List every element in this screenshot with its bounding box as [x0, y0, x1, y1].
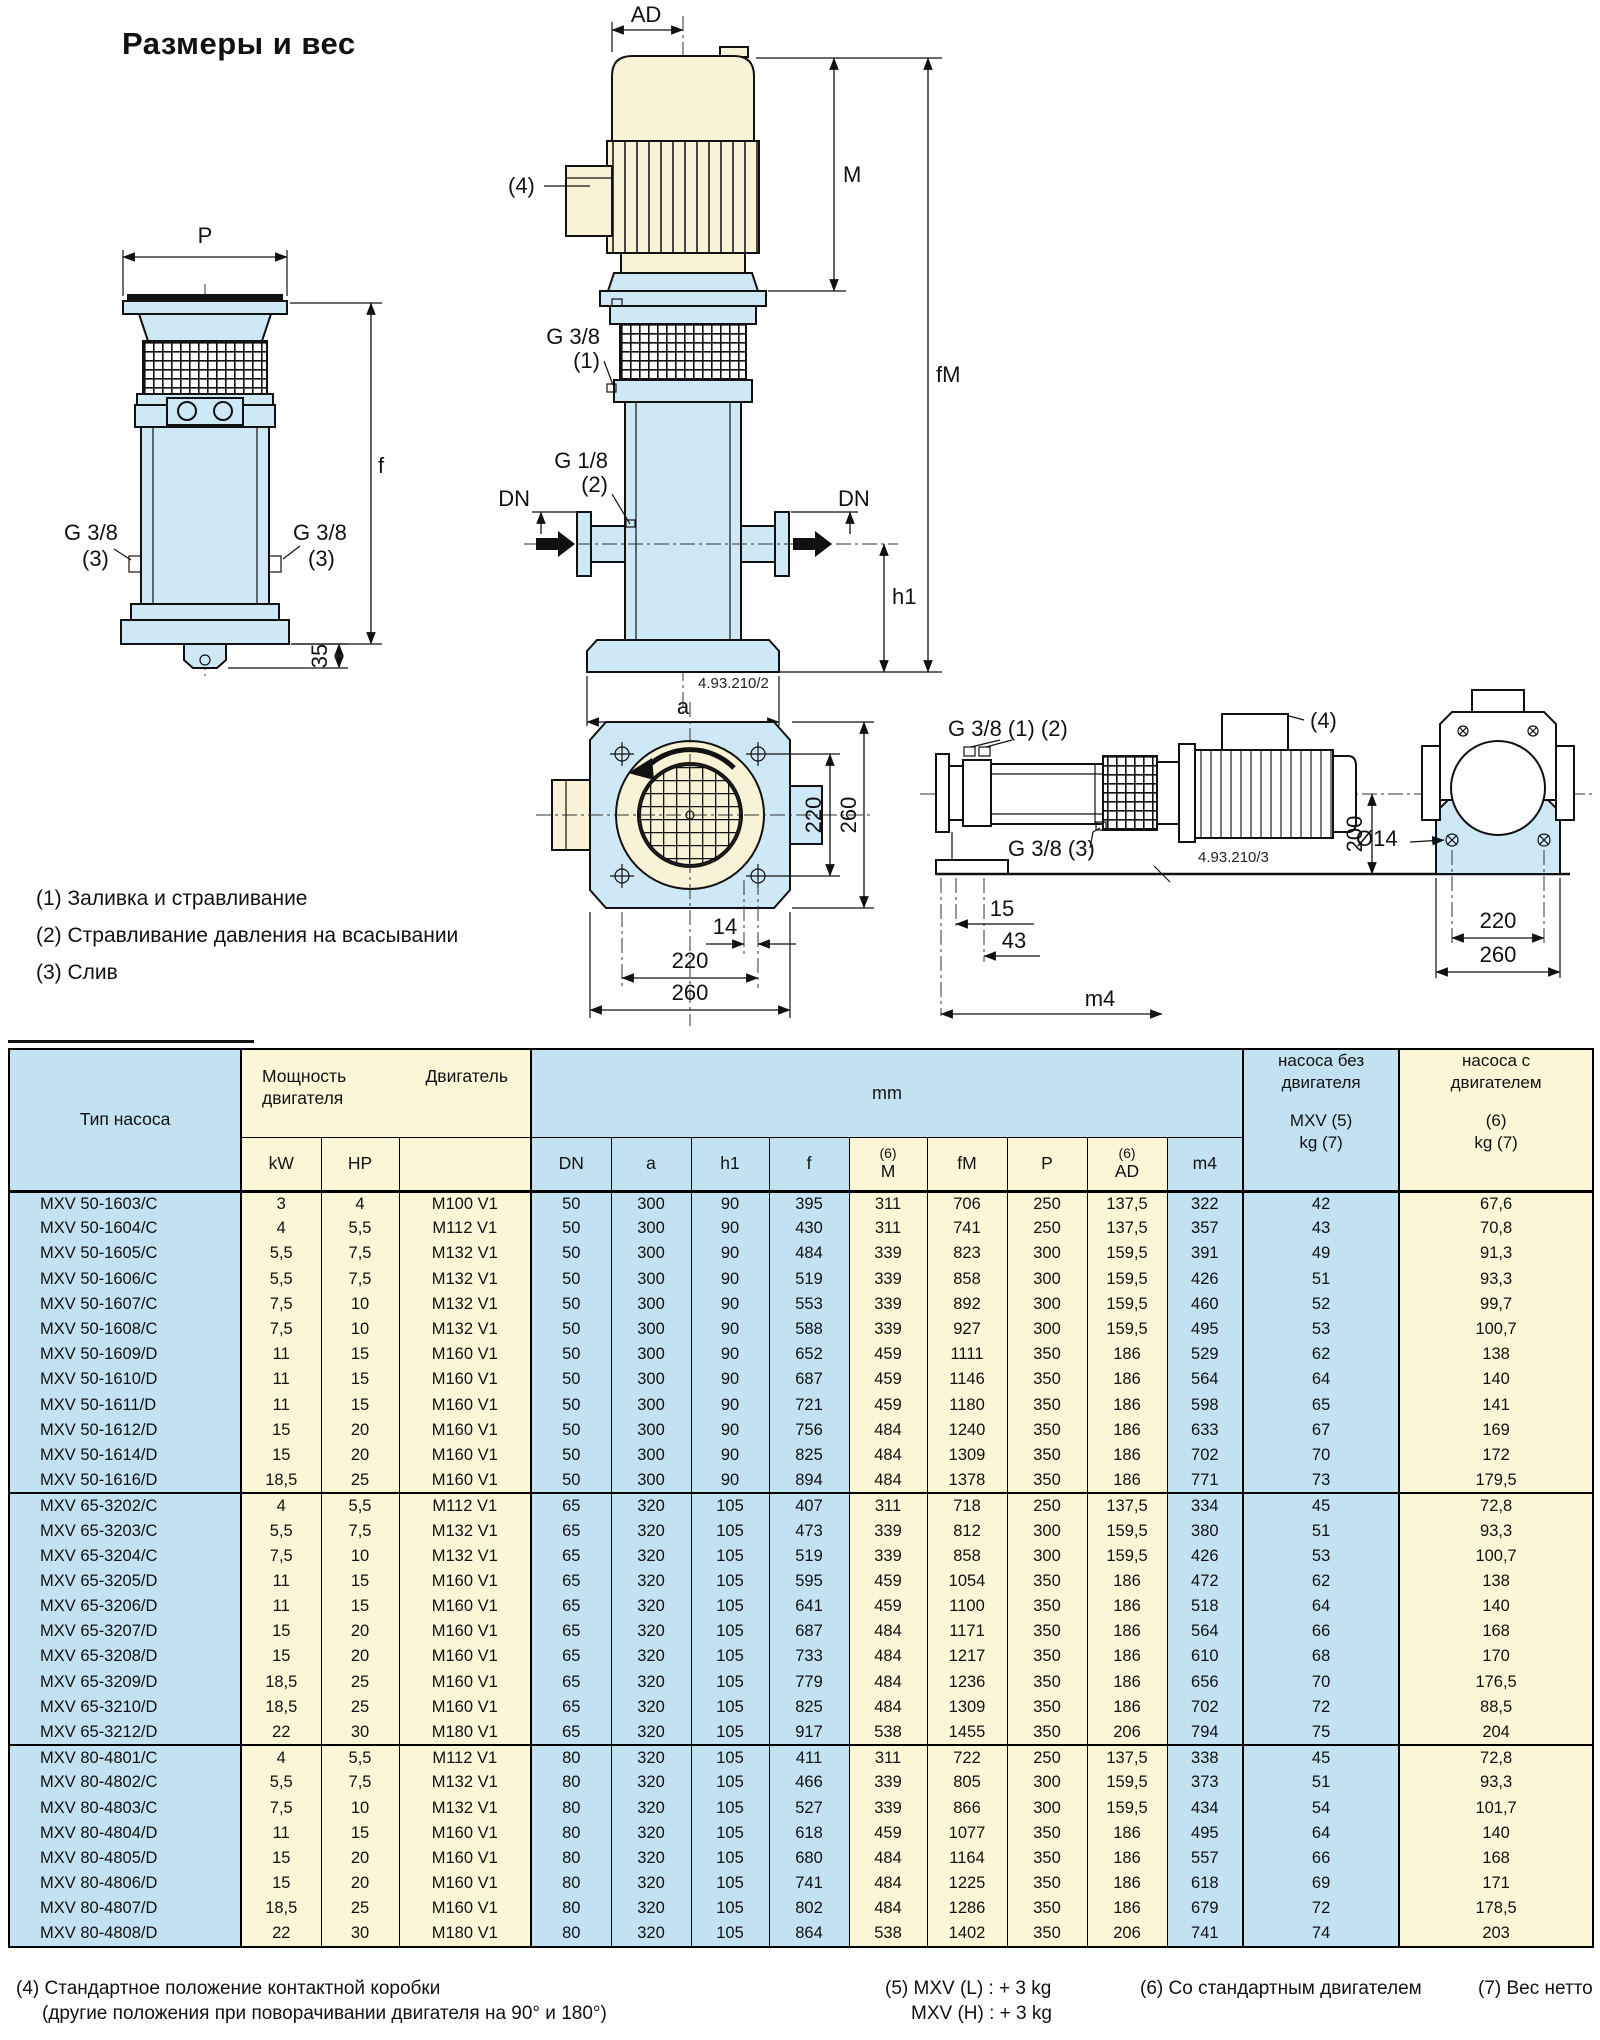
cell: 484	[849, 1443, 927, 1468]
cell: 159,5	[1087, 1292, 1167, 1317]
cell: MXV 80-4807/D	[9, 1896, 241, 1921]
cell: M132 V1	[399, 1292, 531, 1317]
col-header-power-motor: Мощностьдвигателя Двигатель	[241, 1049, 531, 1137]
cell: MXV 50-1614/D	[9, 1443, 241, 1468]
cell: 380	[1167, 1518, 1243, 1543]
cell: 88,5	[1399, 1695, 1593, 1720]
cell: M132 V1	[399, 1796, 531, 1821]
cell: M160 V1	[399, 1393, 531, 1418]
cell: 171	[1399, 1871, 1593, 1896]
cell: 311	[849, 1216, 927, 1241]
cell: MXV 50-1610/D	[9, 1367, 241, 1392]
cell: 426	[1167, 1544, 1243, 1569]
cell: 50	[531, 1241, 611, 1266]
cell: 484	[849, 1418, 927, 1443]
table-row: MXV 50-1614/D1520M160 V15030090825484130…	[9, 1443, 1593, 1468]
cell: 20	[321, 1619, 399, 1644]
cell: 137,5	[1087, 1745, 1167, 1770]
cell: 49	[1243, 1241, 1399, 1266]
table-row: MXV 50-1606/C5,57,5M132 V150300905193398…	[9, 1267, 1593, 1292]
table-group-3: MXV 80-4801/C45,5M112 V18032010541131172…	[9, 1745, 1593, 1947]
cell: 100,7	[1399, 1544, 1593, 1569]
cell: 138	[1399, 1569, 1593, 1594]
cell: 7,5	[241, 1796, 321, 1821]
cell: MXV 65-3210/D	[9, 1695, 241, 1720]
cell: 300	[1007, 1317, 1087, 1342]
cell: 15	[241, 1443, 321, 1468]
cell: 1054	[927, 1569, 1007, 1594]
cell: 1100	[927, 1594, 1007, 1619]
cell: 65	[531, 1695, 611, 1720]
pump-front-view-drawing: P f G 3/8 (3) G 3/8 (3) 35	[64, 223, 385, 676]
cell: 68	[1243, 1644, 1399, 1669]
cell: 484	[849, 1670, 927, 1695]
cell: 741	[769, 1871, 849, 1896]
cell: 395	[769, 1191, 849, 1216]
port-notes: (1) Заливка и стравливание (2) Стравлива…	[36, 880, 458, 991]
cell: 633	[1167, 1418, 1243, 1443]
cell: 339	[849, 1796, 927, 1821]
cell: 15	[321, 1342, 399, 1367]
cell: 350	[1007, 1367, 1087, 1392]
cell: 11	[241, 1569, 321, 1594]
cell: 320	[611, 1770, 691, 1795]
cell: MXV 65-3209/D	[9, 1670, 241, 1695]
cell: 320	[611, 1821, 691, 1846]
cell: 15	[241, 1619, 321, 1644]
cell: 618	[769, 1821, 849, 1846]
cell: 300	[611, 1317, 691, 1342]
cell: 1180	[927, 1393, 1007, 1418]
cell: 300	[611, 1292, 691, 1317]
cell: 1455	[927, 1720, 1007, 1745]
cell: 1402	[927, 1921, 1007, 1946]
cell: 927	[927, 1317, 1007, 1342]
cell: 320	[611, 1745, 691, 1770]
cell: 320	[611, 1670, 691, 1695]
cell: 50	[531, 1468, 611, 1493]
cell: MXV 80-4801/C	[9, 1745, 241, 1770]
cell: 140	[1399, 1594, 1593, 1619]
cell: 1236	[927, 1670, 1007, 1695]
cell: MXV 65-3204/C	[9, 1544, 241, 1569]
cell: 1164	[927, 1846, 1007, 1871]
cell: M132 V1	[399, 1241, 531, 1266]
cell: 50	[531, 1292, 611, 1317]
cell: 350	[1007, 1896, 1087, 1921]
dim-label-15: 15	[990, 896, 1014, 921]
cell: 518	[1167, 1594, 1243, 1619]
cell: 54	[1243, 1796, 1399, 1821]
cell: MXV 80-4803/C	[9, 1796, 241, 1821]
cell: 186	[1087, 1896, 1167, 1921]
cell: 311	[849, 1493, 927, 1518]
cell: 93,3	[1399, 1770, 1593, 1795]
cell: 917	[769, 1720, 849, 1745]
cell: MXV 65-3205/D	[9, 1569, 241, 1594]
cell: MXV 80-4806/D	[9, 1871, 241, 1896]
cell: 812	[927, 1518, 1007, 1543]
cell: 459	[849, 1569, 927, 1594]
table-row: MXV 65-3209/D18,525M160 V165320105779484…	[9, 1670, 1593, 1695]
cell: 90	[691, 1468, 769, 1493]
cell: 892	[927, 1292, 1007, 1317]
cell: 5,5	[321, 1493, 399, 1518]
cell: 51	[1243, 1518, 1399, 1543]
cell: 45	[1243, 1493, 1399, 1518]
cell: 320	[611, 1720, 691, 1745]
footnote-6: (6) Со стандартным двигателем	[1140, 1976, 1422, 2001]
cell: 51	[1243, 1267, 1399, 1292]
cell: 339	[849, 1317, 927, 1342]
cell: 300	[611, 1367, 691, 1392]
cell: 100,7	[1399, 1317, 1593, 1342]
cell: 557	[1167, 1846, 1243, 1871]
cell: MXV 65-3207/D	[9, 1619, 241, 1644]
table-row: MXV 50-1607/C7,510M132 V1503009055333989…	[9, 1292, 1593, 1317]
cell: 484	[849, 1468, 927, 1493]
cell: 350	[1007, 1871, 1087, 1896]
cell: 10	[321, 1292, 399, 1317]
table-row: MXV 50-1609/D1115M160 V15030090652459111…	[9, 1342, 1593, 1367]
cell: 90	[691, 1418, 769, 1443]
cell: 90	[691, 1292, 769, 1317]
cell: 339	[849, 1544, 927, 1569]
cell: 65	[531, 1619, 611, 1644]
cell: 350	[1007, 1393, 1087, 1418]
cell: 70	[1243, 1670, 1399, 1695]
cell: 22	[241, 1720, 321, 1745]
cell: 300	[611, 1468, 691, 1493]
cell: 706	[927, 1191, 1007, 1216]
cell: M160 V1	[399, 1821, 531, 1846]
cell: 186	[1087, 1342, 1167, 1367]
cell: 90	[691, 1267, 769, 1292]
cell: 300	[1007, 1796, 1087, 1821]
cell: 11	[241, 1342, 321, 1367]
dim-label-220-bottom: 220	[672, 948, 709, 973]
cell: 64	[1243, 1367, 1399, 1392]
col-header-pump-without-motor: насоса без двигателя MXV (5) kg (7)	[1243, 1049, 1399, 1191]
cell: M112 V1	[399, 1745, 531, 1770]
pump-with-motor-front-view-drawing: AD (4) M fM G 3/8 (1) G 1/8 (2)	[498, 2, 960, 726]
cell: 687	[769, 1367, 849, 1392]
cell: 15	[321, 1367, 399, 1392]
cell: MXV 50-1605/C	[9, 1241, 241, 1266]
dim-label-M: M	[843, 162, 861, 187]
cell: 756	[769, 1418, 849, 1443]
cell: 1240	[927, 1418, 1007, 1443]
cell: 45	[1243, 1745, 1399, 1770]
cell: 159,5	[1087, 1770, 1167, 1795]
table-row: MXV 65-3212/D2230M180 V16532010591753814…	[9, 1720, 1593, 1745]
cell: 300	[1007, 1544, 1087, 1569]
cell: 473	[769, 1518, 849, 1543]
cell: 50	[531, 1191, 611, 1216]
cell: 15	[321, 1393, 399, 1418]
cell: 20	[321, 1443, 399, 1468]
cell: 20	[321, 1644, 399, 1669]
port-label-3-left: (3)	[82, 546, 109, 571]
cell: 656	[1167, 1670, 1243, 1695]
cell: 320	[611, 1644, 691, 1669]
port-label-g18: G 1/8	[554, 448, 608, 473]
cell: 90	[691, 1443, 769, 1468]
table-row: MXV 50-1603/C34M100 V1503009039531170625…	[9, 1191, 1593, 1216]
cell: 90	[691, 1241, 769, 1266]
col-header-mm: mm	[531, 1049, 1243, 1137]
cell: 186	[1087, 1871, 1167, 1896]
cell: 105	[691, 1821, 769, 1846]
cell: 320	[611, 1518, 691, 1543]
cell: M112 V1	[399, 1216, 531, 1241]
cell: 5,5	[321, 1745, 399, 1770]
cell: 1286	[927, 1896, 1007, 1921]
cell: 459	[849, 1594, 927, 1619]
cell: M112 V1	[399, 1493, 531, 1518]
dim-label-dia14: Ø14	[1356, 826, 1398, 851]
cell: 65	[1243, 1393, 1399, 1418]
cell: 137,5	[1087, 1493, 1167, 1518]
cell: 320	[611, 1594, 691, 1619]
cell: 186	[1087, 1418, 1167, 1443]
cell: 618	[1167, 1871, 1243, 1896]
cell: 25	[321, 1670, 399, 1695]
cell: 484	[849, 1846, 927, 1871]
note-label-4-side: (4)	[1310, 708, 1337, 733]
cell: 105	[691, 1846, 769, 1871]
cell: 137,5	[1087, 1191, 1167, 1216]
motor-label: Двигатель	[425, 1066, 508, 1110]
cell: M160 V1	[399, 1896, 531, 1921]
cell: 140	[1399, 1821, 1593, 1846]
col-header-motor-spacer	[399, 1137, 531, 1191]
cell: 105	[691, 1493, 769, 1518]
cell: 553	[769, 1292, 849, 1317]
dim-label-P: P	[198, 223, 213, 248]
cell: 90	[691, 1393, 769, 1418]
cell: 538	[849, 1720, 927, 1745]
table-row: MXV 65-3204/C7,510M132 V1653201055193398…	[9, 1544, 1593, 1569]
footnote-5: (5) MXV (L) : + 3 kg MXV (H) : + 3 kg	[885, 1976, 1052, 2026]
cell: 159,5	[1087, 1544, 1167, 1569]
cell: 53	[1243, 1544, 1399, 1569]
cell: 722	[927, 1745, 1007, 1770]
cell: MXV 50-1606/C	[9, 1267, 241, 1292]
cell: 69	[1243, 1871, 1399, 1896]
cell: M180 V1	[399, 1921, 531, 1946]
cell: 825	[769, 1695, 849, 1720]
cell: 105	[691, 1594, 769, 1619]
cell: 72	[1243, 1695, 1399, 1720]
cell: 186	[1087, 1619, 1167, 1644]
cell: 320	[611, 1796, 691, 1821]
dim-label-260-vert: 260	[836, 797, 861, 834]
cell: 62	[1243, 1569, 1399, 1594]
cell: 80	[531, 1821, 611, 1846]
cell: 538	[849, 1921, 927, 1946]
cell: M160 V1	[399, 1846, 531, 1871]
cell: 206	[1087, 1720, 1167, 1745]
table-row: MXV 65-3208/D1520M160 V16532010573348412…	[9, 1644, 1593, 1669]
cell: M180 V1	[399, 1720, 531, 1745]
cell: 105	[691, 1745, 769, 1770]
cell: 460	[1167, 1292, 1243, 1317]
cell: M132 V1	[399, 1267, 531, 1292]
footnote-4: (4) Стандартное положение контактной кор…	[16, 1976, 607, 2026]
cell: 72	[1243, 1896, 1399, 1921]
table-row: MXV 80-4806/D1520M160 V18032010574148412…	[9, 1871, 1593, 1896]
cell: 702	[1167, 1443, 1243, 1468]
cell: 320	[611, 1871, 691, 1896]
cell: 484	[849, 1695, 927, 1720]
cell: 894	[769, 1468, 849, 1493]
cell: 65	[531, 1670, 611, 1695]
cell: 300	[1007, 1241, 1087, 1266]
cell: 300	[611, 1443, 691, 1468]
cell: 459	[849, 1821, 927, 1846]
table-group-2: MXV 65-3202/C45,5M112 V16532010540731171…	[9, 1493, 1593, 1745]
cell: 52	[1243, 1292, 1399, 1317]
cell: 90	[691, 1317, 769, 1342]
cell: 18,5	[241, 1468, 321, 1493]
cell: 1309	[927, 1695, 1007, 1720]
cell: 357	[1167, 1216, 1243, 1241]
cell: 588	[769, 1317, 849, 1342]
cell: 186	[1087, 1443, 1167, 1468]
cell: 53	[1243, 1317, 1399, 1342]
cell: 320	[611, 1896, 691, 1921]
cell: 320	[611, 1493, 691, 1518]
cell: M160 V1	[399, 1468, 531, 1493]
cell: 65	[531, 1493, 611, 1518]
cell: 300	[611, 1216, 691, 1241]
col-header-fm: fM	[927, 1137, 1007, 1191]
cell: 15	[321, 1821, 399, 1846]
cell: M100 V1	[399, 1191, 531, 1216]
cell: MXV 80-4805/D	[9, 1846, 241, 1871]
cell: 20	[321, 1846, 399, 1871]
cell: 679	[1167, 1896, 1243, 1921]
table-row: MXV 65-3210/D18,525M160 V165320105825484…	[9, 1695, 1593, 1720]
cell: 334	[1167, 1493, 1243, 1518]
cell: 170	[1399, 1644, 1593, 1669]
col-header-dn: DN	[531, 1137, 611, 1191]
dim-label-220-vert: 220	[801, 797, 826, 834]
cell: 159,5	[1087, 1267, 1167, 1292]
cell: MXV 65-3203/C	[9, 1518, 241, 1543]
cell: 105	[691, 1569, 769, 1594]
cell: 320	[611, 1921, 691, 1946]
cell: 7,5	[241, 1317, 321, 1342]
cell: MXV 50-1608/C	[9, 1317, 241, 1342]
col-header-a: a	[611, 1137, 691, 1191]
cell: 339	[849, 1770, 927, 1795]
cell: 101,7	[1399, 1796, 1593, 1821]
cell: 91,3	[1399, 1241, 1593, 1266]
cell: M160 V1	[399, 1695, 531, 1720]
cell: 67	[1243, 1418, 1399, 1443]
cell: MXV 65-3202/C	[9, 1493, 241, 1518]
cell: 459	[849, 1393, 927, 1418]
cell: 434	[1167, 1796, 1243, 1821]
cell: 564	[1167, 1367, 1243, 1392]
cell: 339	[849, 1267, 927, 1292]
cell: 90	[691, 1191, 769, 1216]
cell: 300	[611, 1191, 691, 1216]
cell: 300	[611, 1393, 691, 1418]
cell: 186	[1087, 1393, 1167, 1418]
cell: 350	[1007, 1443, 1087, 1468]
cell: M160 V1	[399, 1619, 531, 1644]
cell: 105	[691, 1518, 769, 1543]
cell: 65	[531, 1644, 611, 1669]
cell: 250	[1007, 1191, 1087, 1216]
table-row: MXV 50-1611/D1115M160 V15030090721459118…	[9, 1393, 1593, 1418]
cell: 1111	[927, 1342, 1007, 1367]
cell: 65	[531, 1720, 611, 1745]
cell: 15	[321, 1594, 399, 1619]
cell: 484	[849, 1619, 927, 1644]
port-label-2: (2)	[581, 472, 608, 497]
motor-end-top-view-drawing: Ø14 220 260	[1356, 690, 1574, 978]
cell: 1217	[927, 1644, 1007, 1669]
cell: 1146	[927, 1367, 1007, 1392]
cell: 65	[531, 1544, 611, 1569]
dim-label-m4: m4	[1085, 986, 1116, 1011]
cell: 11	[241, 1367, 321, 1392]
port-label-g38-right: G 3/8	[293, 520, 347, 545]
cell: 99,7	[1399, 1292, 1593, 1317]
cell: 733	[769, 1644, 849, 1669]
cell: 186	[1087, 1468, 1167, 1493]
cell: 1309	[927, 1443, 1007, 1468]
cell: 3	[241, 1191, 321, 1216]
cell: 159,5	[1087, 1796, 1167, 1821]
cell: 484	[849, 1644, 927, 1669]
cell: 105	[691, 1670, 769, 1695]
port-label-g38-1: G 3/8	[546, 324, 600, 349]
cell: 1225	[927, 1871, 1007, 1896]
cell: 137,5	[1087, 1216, 1167, 1241]
cell: 20	[321, 1418, 399, 1443]
cell: M132 V1	[399, 1317, 531, 1342]
drawing-code-side: 4.93.210/3	[1198, 849, 1269, 866]
dim-label-35: 35	[307, 644, 332, 668]
cell: 159,5	[1087, 1518, 1167, 1543]
port-label-1: (1)	[573, 348, 600, 373]
cell: 186	[1087, 1594, 1167, 1619]
cell: 718	[927, 1493, 1007, 1518]
cell: 43	[1243, 1216, 1399, 1241]
col-header-m: (6)M	[849, 1137, 927, 1191]
note-3: (3) Слив	[36, 954, 458, 991]
cell: MXV 50-1604/C	[9, 1216, 241, 1241]
cell: 391	[1167, 1241, 1243, 1266]
cell: 472	[1167, 1569, 1243, 1594]
note-1: (1) Заливка и стравливание	[36, 880, 458, 917]
dim-label-fM: fM	[936, 362, 960, 387]
dim-label-h1: h1	[892, 584, 916, 609]
cell: 300	[1007, 1267, 1087, 1292]
cell: 350	[1007, 1846, 1087, 1871]
cell: 159,5	[1087, 1317, 1167, 1342]
dim-label-a: a	[677, 694, 690, 719]
cell: 866	[927, 1796, 1007, 1821]
cell: 598	[1167, 1393, 1243, 1418]
cell: 350	[1007, 1569, 1087, 1594]
cell: 5,5	[241, 1518, 321, 1543]
